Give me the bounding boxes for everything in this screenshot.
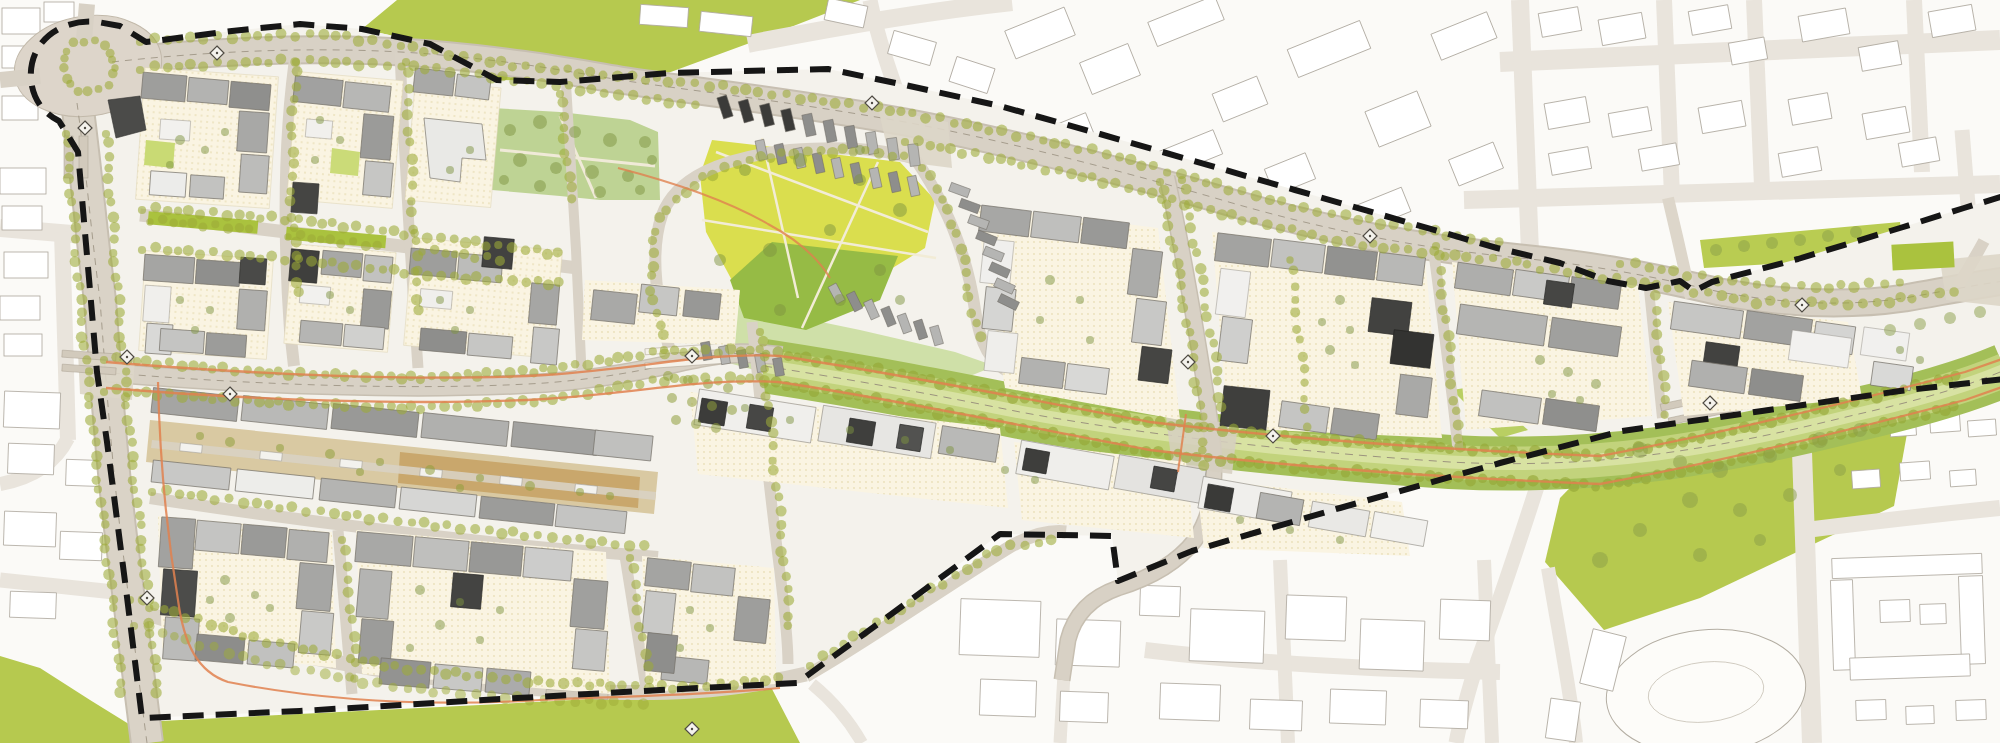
- context-buildings-39: [1949, 469, 1976, 487]
- context-buildings-8: [1212, 76, 1268, 122]
- blocks-20: [229, 81, 271, 110]
- context-buildings-0: [639, 4, 688, 27]
- blocks-29: [360, 114, 394, 160]
- blocks-108: [1220, 386, 1270, 431]
- lawn-strip-east: [1891, 241, 1954, 270]
- context-buildings-3: [888, 30, 937, 65]
- site-roads-6: [0, 76, 40, 80]
- context-buildings-38: [1899, 461, 1930, 481]
- blocks-60: [591, 290, 638, 324]
- dark-pair-a: [1368, 298, 1412, 337]
- blocks-19: [187, 77, 229, 104]
- blocks-42: [237, 289, 268, 331]
- context-buildings-26: [1698, 100, 1746, 133]
- blocks-75: [469, 542, 523, 576]
- context-buildings-29: [1548, 147, 1591, 176]
- context-buildings-27: [1788, 93, 1832, 126]
- context-buildings-61: [1059, 691, 1108, 723]
- context-buildings-64: [1329, 689, 1386, 725]
- blocks-85: [645, 558, 692, 590]
- context-buildings-32: [1898, 137, 1940, 167]
- context-buildings-67: [7, 443, 54, 475]
- blocks-66: [195, 520, 241, 554]
- blocks-111: [1396, 374, 1433, 418]
- context-roads-8: [1520, 0, 1530, 252]
- blocks-105: [1376, 252, 1425, 285]
- context-buildings-41: [1830, 580, 1855, 671]
- context-buildings-59: [1439, 599, 1490, 641]
- blocks-23: [149, 171, 187, 197]
- context-buildings-70: [60, 531, 103, 560]
- blocks-100: [1019, 357, 1066, 388]
- blocks-37: [143, 254, 195, 283]
- blocks-21: [237, 111, 270, 153]
- context-buildings-69: [3, 511, 56, 547]
- blocks-99: [1138, 346, 1172, 383]
- blocks-141: [1150, 466, 1177, 492]
- context-buildings-60: [979, 679, 1036, 717]
- blocks-92: [1031, 211, 1082, 243]
- blocks-56: [530, 327, 559, 365]
- blocks-80: [572, 629, 607, 672]
- context-buildings-19: [1688, 5, 1732, 36]
- blocks-143: [1204, 484, 1234, 512]
- context-buildings-79: [0, 296, 40, 320]
- blocks-74: [413, 537, 469, 572]
- blocks-59: [419, 289, 452, 310]
- context-buildings-4: [949, 56, 995, 93]
- context-buildings-66: [3, 391, 60, 429]
- context-buildings-44: [1880, 599, 1911, 622]
- context-buildings-65: [1420, 699, 1469, 729]
- masterplan-canvas: [0, 0, 2000, 743]
- context-buildings-46: [1856, 699, 1887, 720]
- blocks-22: [239, 154, 270, 194]
- blocks-84: [451, 573, 484, 609]
- blocks-76: [523, 547, 573, 581]
- blocks-67: [241, 524, 287, 558]
- blocks-44: [205, 333, 246, 358]
- context-buildings-7: [1148, 0, 1224, 47]
- context-buildings-18: [1598, 12, 1646, 45]
- context-buildings-80: [4, 334, 42, 356]
- blocks-69: [296, 563, 334, 612]
- blocks-97: [1127, 248, 1162, 297]
- context-buildings-72: [2, 8, 40, 34]
- blocks-40: [143, 285, 171, 323]
- blocks-140: [1022, 448, 1049, 474]
- blocks-31: [291, 182, 319, 214]
- blocks-28: [343, 82, 391, 113]
- context-buildings-77: [2, 206, 42, 230]
- context-buildings-76: [0, 168, 46, 194]
- blocks-86: [691, 564, 736, 596]
- context-buildings-42: [1958, 576, 1985, 665]
- context-buildings-58: [1359, 619, 1425, 671]
- blocks-96: [984, 331, 1018, 374]
- blocks-55: [528, 283, 559, 325]
- blocks-30: [363, 161, 394, 197]
- context-buildings-31: [1778, 147, 1822, 178]
- context-roads-20: [812, 684, 862, 743]
- context-buildings-24: [1544, 97, 1590, 130]
- context-buildings-6: [1080, 43, 1141, 94]
- blocks-49: [299, 320, 343, 346]
- blocks-77: [356, 569, 392, 620]
- context-buildings-10: [1365, 91, 1431, 147]
- blocks-101: [1065, 364, 1110, 395]
- context-buildings-78: [4, 252, 48, 278]
- blocks-38: [195, 259, 241, 286]
- blocks-89: [642, 591, 676, 636]
- context-buildings-55: [1139, 585, 1180, 616]
- blocks-106: [1215, 268, 1250, 317]
- context-buildings-37: [1851, 469, 1880, 489]
- context-buildings-48: [1956, 699, 1987, 720]
- blocks-98: [1131, 298, 1166, 345]
- blocks-18: [141, 72, 187, 102]
- context-buildings-56: [1189, 609, 1265, 664]
- blocks-136: [896, 424, 923, 451]
- context-roads-1: [62, 232, 68, 440]
- context-buildings-9: [1287, 20, 1371, 77]
- masterplan-svg: [0, 0, 2000, 743]
- dark-pair-b: [1390, 330, 1434, 369]
- context-buildings-47: [1906, 706, 1935, 725]
- blocks-24: [189, 175, 224, 199]
- context-buildings-43: [1850, 654, 1971, 680]
- blocks-50: [343, 324, 385, 349]
- blocks-93: [1081, 217, 1130, 248]
- blocks-63: [158, 517, 195, 569]
- context-buildings-17: [1538, 7, 1582, 38]
- context-buildings-40: [1832, 553, 1983, 578]
- context-roads-19: [1484, 560, 1492, 743]
- context-roads-7: [1464, 184, 2000, 200]
- context-buildings-45: [1920, 604, 1947, 625]
- blocks-48: [360, 289, 391, 329]
- context-buildings-28: [1862, 106, 1910, 139]
- field-southwest: [0, 656, 132, 743]
- blocks-57: [419, 328, 467, 354]
- stadium-oval: [1600, 620, 1812, 743]
- context-buildings-71: [10, 591, 57, 619]
- blocks-62: [683, 290, 722, 320]
- context-buildings-5: [1005, 7, 1076, 59]
- blocks-119: [1543, 280, 1574, 308]
- blocks-104: [1324, 246, 1377, 280]
- blocks-79: [570, 579, 608, 630]
- context-buildings-16: [1449, 142, 1504, 186]
- blocks-103: [1270, 239, 1325, 273]
- blocks-87: [734, 596, 770, 643]
- blocks-107: [1217, 316, 1252, 363]
- context-roads-10: [1754, 0, 1762, 186]
- context-buildings-52: [1545, 698, 1580, 742]
- blocks-58: [467, 333, 513, 359]
- context-roads-3: [0, 580, 114, 592]
- blocks-27: [293, 76, 343, 107]
- context-buildings-36: [1967, 419, 1996, 437]
- context-buildings-11: [1431, 12, 1497, 60]
- context-buildings-25: [1608, 107, 1652, 138]
- context-buildings-57: [1285, 595, 1346, 641]
- context-buildings-53: [959, 599, 1041, 658]
- context-buildings-21: [1798, 8, 1850, 42]
- context-buildings-63: [1249, 699, 1302, 731]
- blocks-25: [159, 119, 190, 141]
- blocks-73: [355, 532, 413, 567]
- blocks-33: [330, 148, 360, 176]
- blocks-68: [287, 529, 329, 562]
- context-buildings-62: [1159, 683, 1220, 721]
